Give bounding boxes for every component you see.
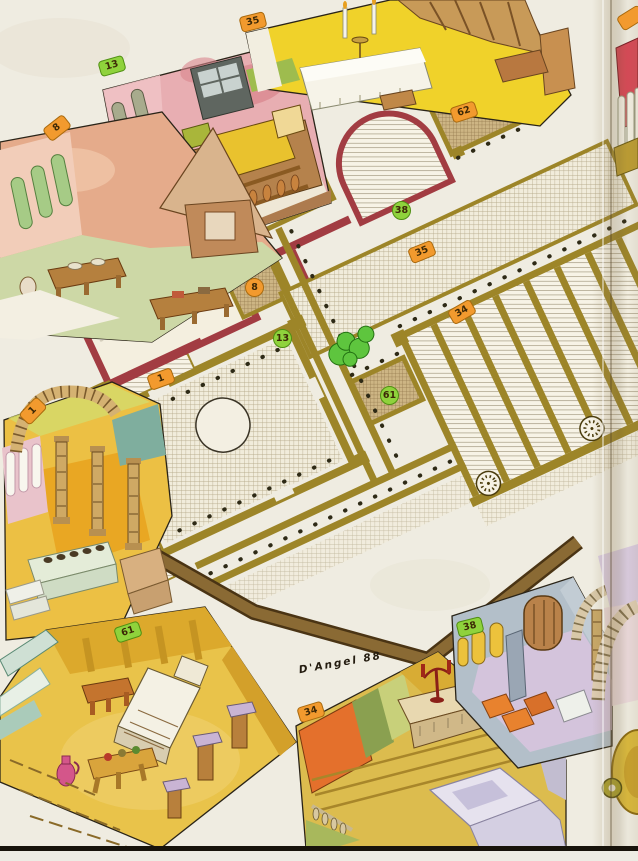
plan-badge-8: 8	[245, 278, 264, 297]
arched-door	[524, 596, 562, 650]
plan-badge-13: 13	[273, 329, 292, 348]
plan-badge-38: 38	[392, 201, 411, 220]
hearth-opening	[205, 212, 235, 240]
book-page: 13 35 8 1 61 34 38 62 38 35 8 13 34 1 61…	[0, 0, 638, 861]
page-bottom-edge	[0, 846, 638, 851]
pillar	[506, 630, 526, 702]
paper-mottle	[370, 559, 490, 611]
illustration-canvas	[0, 0, 638, 861]
page-fold-crease	[592, 0, 638, 861]
next-page-strip	[0, 851, 638, 861]
plan-badge-61: 61	[380, 386, 399, 405]
